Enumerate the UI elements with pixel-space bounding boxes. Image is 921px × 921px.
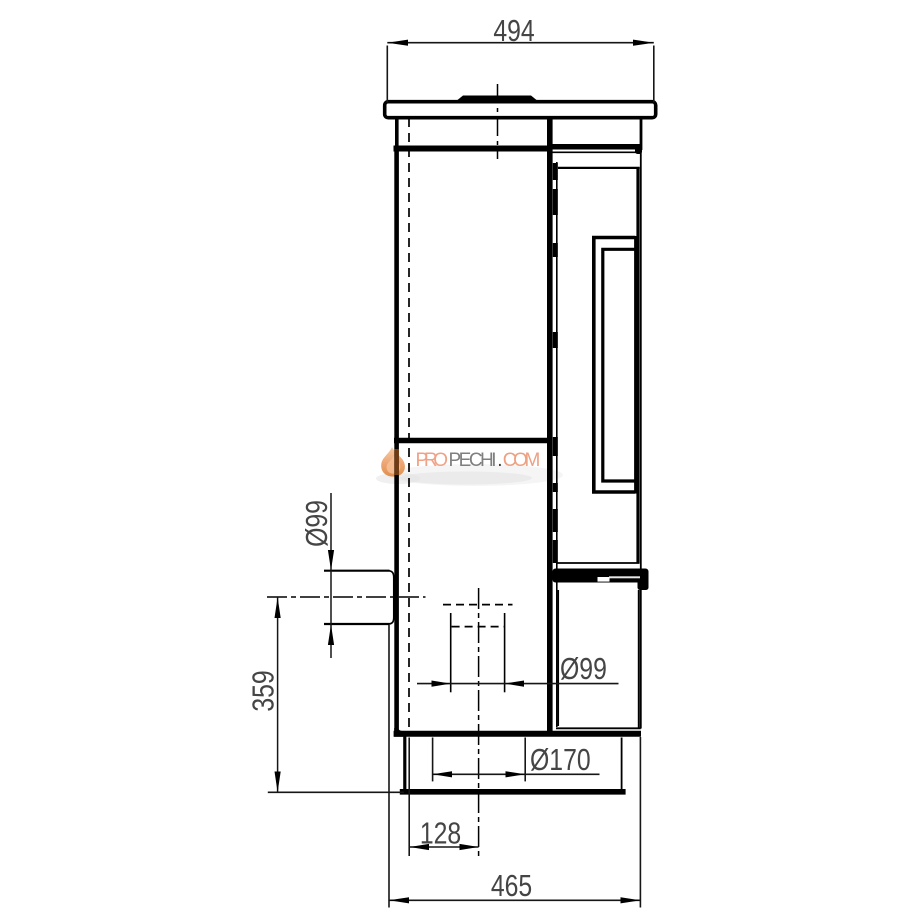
svg-text:Ø99: Ø99 <box>560 651 607 685</box>
svg-text:COM: COM <box>503 450 541 471</box>
svg-text:128: 128 <box>420 816 461 850</box>
svg-text:Ø170: Ø170 <box>530 742 591 776</box>
svg-text:PECHI: PECHI <box>449 450 497 471</box>
svg-text:359: 359 <box>246 670 280 711</box>
svg-text:PRO: PRO <box>416 450 449 471</box>
svg-text:Ø99: Ø99 <box>299 500 333 547</box>
svg-text:494: 494 <box>493 13 534 47</box>
svg-text:465: 465 <box>491 868 532 902</box>
svg-text:.: . <box>497 450 502 471</box>
